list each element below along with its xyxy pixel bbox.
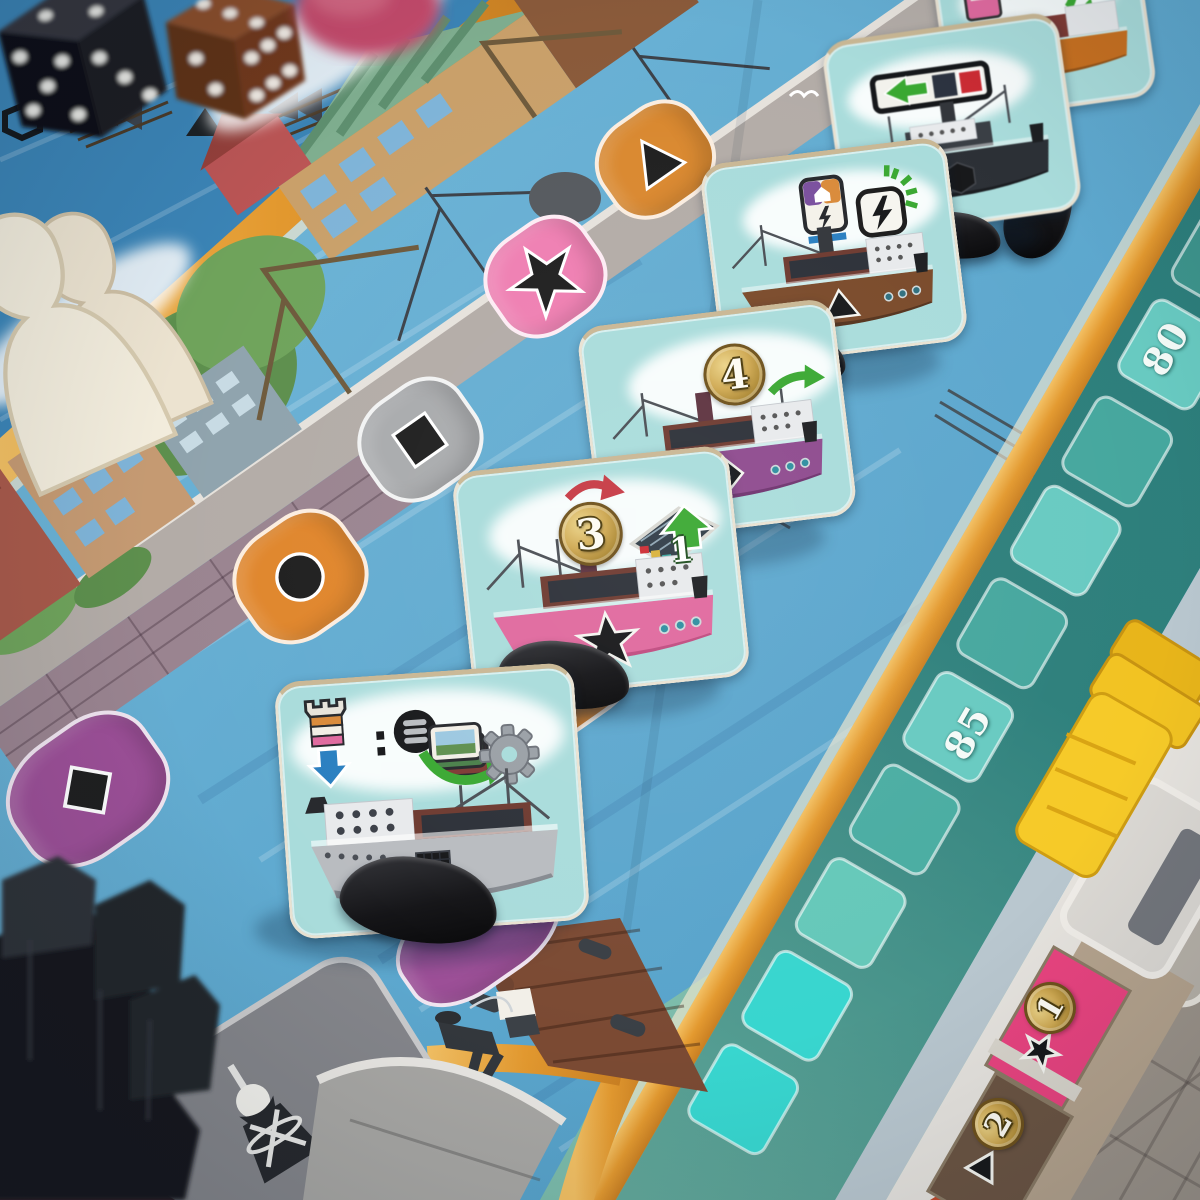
star-symbol (496, 229, 593, 325)
upgrade-value: 1 (668, 529, 696, 571)
goods-tile-icon (963, 0, 1002, 21)
circle-symbol (268, 545, 332, 609)
board-game-photo: 4 (0, 0, 1200, 1200)
diamond-symbol (65, 767, 110, 812)
square-symbol (393, 413, 447, 467)
colon-separator: : (370, 715, 391, 767)
triangle-symbol (623, 128, 685, 189)
